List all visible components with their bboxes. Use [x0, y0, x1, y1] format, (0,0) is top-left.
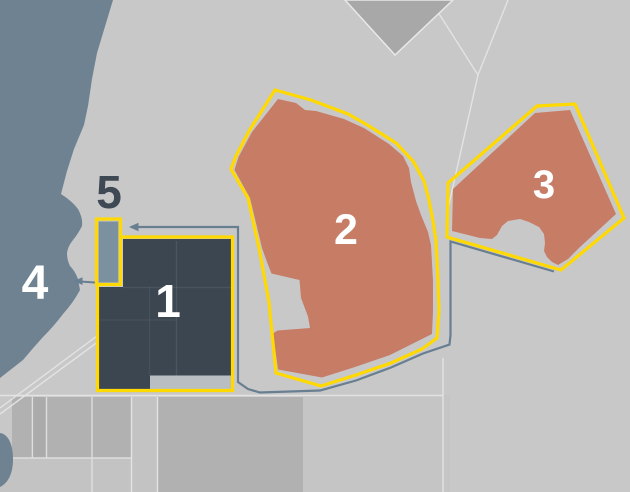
- svg-text:5: 5: [96, 166, 122, 218]
- svg-text:4: 4: [22, 257, 49, 310]
- svg-text:3: 3: [533, 163, 555, 207]
- svg-text:2: 2: [334, 206, 358, 254]
- svg-text:1: 1: [155, 275, 181, 327]
